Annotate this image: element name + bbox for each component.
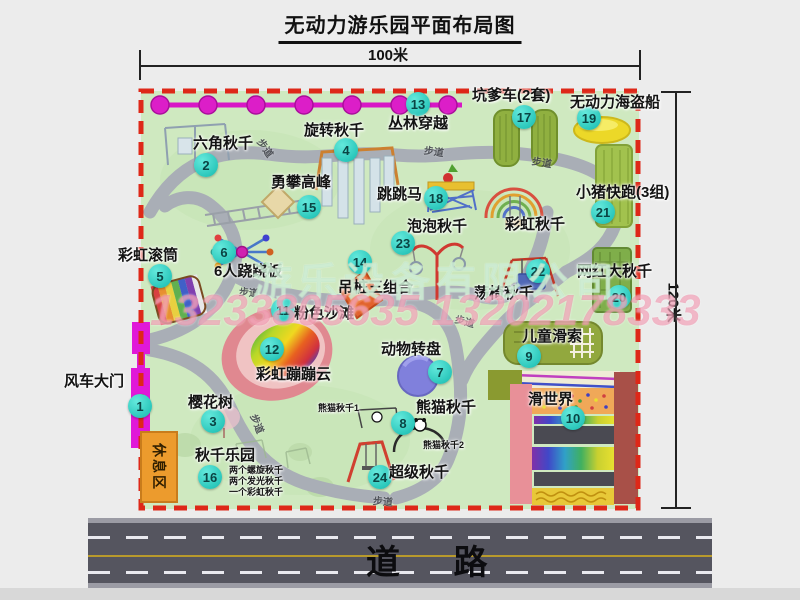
- rest-area-label: 休息区: [149, 443, 169, 491]
- rest-area-box: 休息区: [140, 431, 178, 503]
- kids-zipline-structure: [504, 322, 602, 364]
- animal-turntable-structure: [398, 356, 438, 396]
- pirate-ship-structure: [574, 117, 630, 143]
- road: 道 路: [88, 518, 712, 588]
- piggy-run-structure: [596, 145, 632, 227]
- big-swing-structure: [593, 248, 631, 312]
- park-layout-plan: 无动力游乐园平面布局图 100米 120米: [0, 0, 800, 600]
- road-label: 道 路: [366, 535, 509, 584]
- park-map-drawing: [0, 0, 800, 600]
- slide-world-structure: [488, 370, 638, 505]
